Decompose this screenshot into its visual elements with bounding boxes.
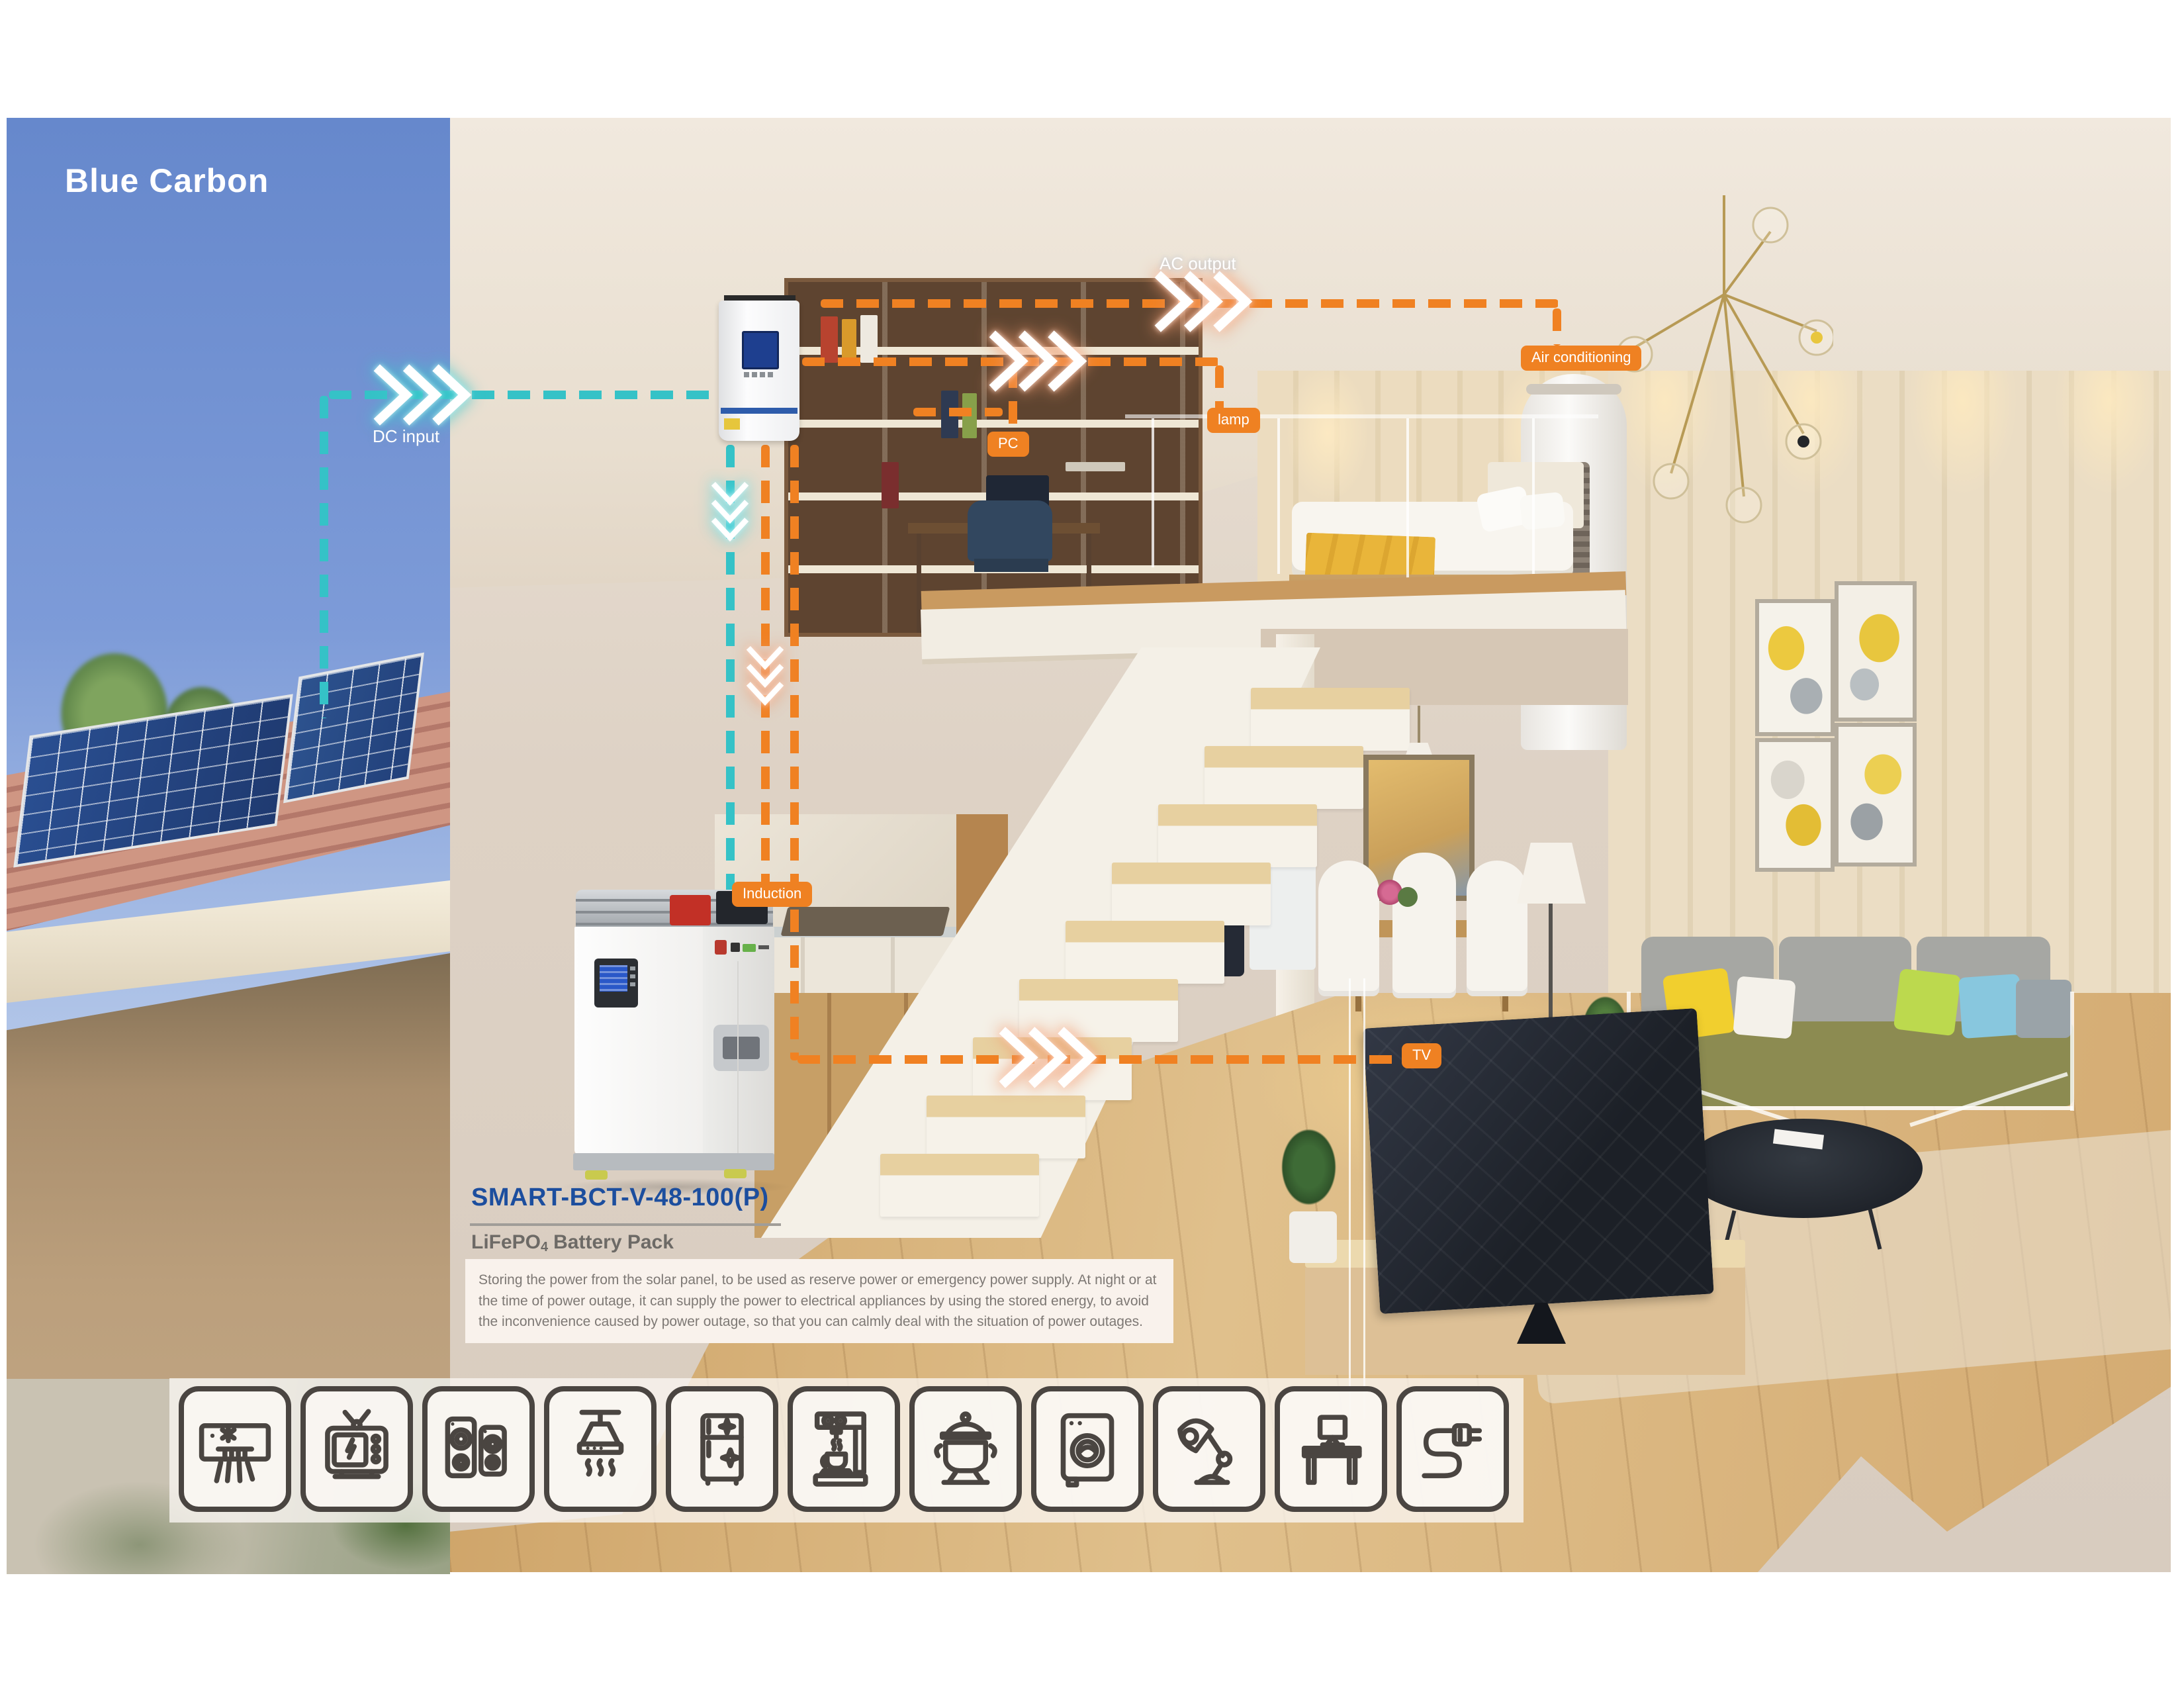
wall-art-frame bbox=[1835, 723, 1917, 867]
stair-step bbox=[1112, 863, 1271, 925]
loft-railing-post bbox=[1152, 418, 1154, 567]
range-hood-icon bbox=[544, 1386, 657, 1512]
inverter-stripe bbox=[721, 408, 797, 414]
sofa-pillow-green bbox=[1893, 968, 1962, 1037]
table-greens bbox=[1398, 887, 1418, 907]
cooking-pot-icon bbox=[909, 1386, 1022, 1512]
wall-art-frame bbox=[1835, 581, 1917, 722]
kitchen-cooktop bbox=[781, 907, 950, 936]
pc-label-badge: PC bbox=[987, 432, 1029, 457]
battery-front-face bbox=[574, 927, 703, 1155]
product-type: Battery Pack bbox=[553, 1231, 674, 1253]
speakers-icon bbox=[422, 1386, 535, 1512]
brochure-page: Blue Carbon bbox=[0, 0, 2184, 1688]
dc-input-label: DC input bbox=[373, 426, 439, 447]
inverter-buttons bbox=[744, 372, 773, 377]
plant-pot-tv bbox=[1289, 1211, 1337, 1263]
chemistry-subscript: 4 bbox=[541, 1240, 548, 1254]
battery-ports bbox=[758, 945, 769, 949]
tv-label-badge: TV bbox=[1402, 1043, 1441, 1068]
dc-flow-line-roof bbox=[320, 396, 328, 718]
chandelier bbox=[1608, 195, 1833, 553]
dc-input-arrows-icon bbox=[371, 363, 477, 426]
wall-art-frame bbox=[1755, 738, 1835, 872]
loft-railing-top bbox=[1125, 414, 1598, 418]
battery-red-terminal bbox=[670, 895, 711, 925]
product-model-title: SMART-BCT-V-48-100(P) bbox=[471, 1184, 769, 1212]
inverter-screen bbox=[742, 331, 779, 369]
sofa-pillow-white bbox=[1733, 976, 1796, 1039]
bed-pillow bbox=[1519, 492, 1565, 531]
wall-art-frame bbox=[1755, 599, 1835, 736]
down-arrows-battery-icon bbox=[711, 470, 749, 555]
ac-flow-line-down bbox=[790, 445, 799, 1060]
stair-step bbox=[1158, 804, 1317, 867]
title-underline bbox=[470, 1223, 781, 1226]
battery-screen-buttons bbox=[630, 966, 635, 990]
interior-photo bbox=[450, 118, 2171, 1572]
air-conditioning-label-badge: Air conditioning bbox=[1521, 346, 1641, 371]
glass-railing-wire bbox=[1349, 978, 1351, 1419]
battery-foot bbox=[585, 1170, 608, 1180]
air-conditioner-icon bbox=[179, 1386, 291, 1512]
book bbox=[842, 319, 856, 363]
dining-chair bbox=[1318, 861, 1379, 996]
dining-chair bbox=[1392, 853, 1456, 998]
stair-step bbox=[927, 1096, 1085, 1158]
ac-flow-drop-aircon bbox=[1553, 308, 1561, 346]
battery-seam bbox=[737, 961, 739, 1153]
tv-icon bbox=[300, 1386, 413, 1512]
sofa-pillow-gray bbox=[2016, 980, 2071, 1038]
chemistry-name: LiFePO bbox=[471, 1231, 541, 1253]
brand-logo: Blue Carbon bbox=[65, 162, 269, 200]
sofa-frame-leg bbox=[2070, 992, 2074, 1111]
loft-railing-post bbox=[1532, 418, 1535, 584]
book bbox=[882, 462, 899, 508]
ac-output-label: AC output bbox=[1160, 254, 1236, 274]
battery-base bbox=[573, 1153, 774, 1170]
appliance-icon-strip bbox=[169, 1378, 1524, 1523]
pendant-cord bbox=[1418, 706, 1420, 744]
battery-screen bbox=[600, 965, 627, 992]
down-arrows-kitchen-icon bbox=[746, 634, 784, 719]
computer-desk-icon bbox=[1275, 1386, 1387, 1512]
stair-step bbox=[1066, 921, 1224, 984]
refrigerator-icon bbox=[666, 1386, 778, 1512]
inverter-warning-sticker bbox=[724, 418, 740, 430]
battery-handle-recess bbox=[723, 1037, 760, 1059]
desk-chair-back bbox=[968, 500, 1052, 561]
battery-indicator-red bbox=[715, 940, 727, 955]
loft-railing-post bbox=[1406, 418, 1409, 581]
product-subtitle: LiFePO4Battery Pack bbox=[471, 1231, 674, 1254]
coffee-machine-icon bbox=[788, 1386, 900, 1512]
washing-machine-icon bbox=[1031, 1386, 1144, 1512]
battery-foot bbox=[724, 1169, 747, 1178]
air-conditioner-cap bbox=[1526, 384, 1621, 395]
stair-step bbox=[880, 1154, 1039, 1217]
exterior-photo: Blue Carbon bbox=[7, 118, 450, 1574]
desk-chair-seat bbox=[974, 559, 1048, 572]
book bbox=[860, 315, 878, 363]
battery-indicator-green bbox=[743, 944, 756, 952]
right-arrows-mid-icon bbox=[986, 330, 1092, 393]
sofa-back-cushion bbox=[1779, 937, 1911, 1024]
ac-flow-line-pc bbox=[913, 408, 1003, 416]
floor-lamp-shade bbox=[1517, 843, 1586, 904]
right-arrows-ac-output-icon bbox=[1152, 270, 1257, 333]
dining-chair bbox=[1467, 861, 1527, 996]
sofa-pillow-blue bbox=[1958, 974, 2023, 1039]
power-plug-icon bbox=[1396, 1386, 1509, 1512]
book-stack bbox=[1066, 462, 1125, 471]
induction-label-badge: Induction bbox=[732, 882, 812, 907]
potted-plant-tv bbox=[1271, 1114, 1347, 1220]
lamp-label-badge: lamp bbox=[1207, 408, 1260, 433]
book bbox=[821, 316, 838, 363]
desk-lamp-icon bbox=[1153, 1386, 1265, 1512]
glass-railing-wire bbox=[1363, 978, 1365, 1419]
stair-step bbox=[1251, 688, 1410, 751]
stair-step bbox=[1205, 746, 1363, 809]
loft-railing-post bbox=[1277, 418, 1280, 574]
product-description: Storing the power from the solar panel, … bbox=[465, 1259, 1173, 1343]
battery-indicator-dark bbox=[731, 943, 740, 952]
ac-flow-drop-lamp bbox=[1215, 365, 1224, 413]
right-arrows-tv-icon bbox=[996, 1026, 1102, 1089]
